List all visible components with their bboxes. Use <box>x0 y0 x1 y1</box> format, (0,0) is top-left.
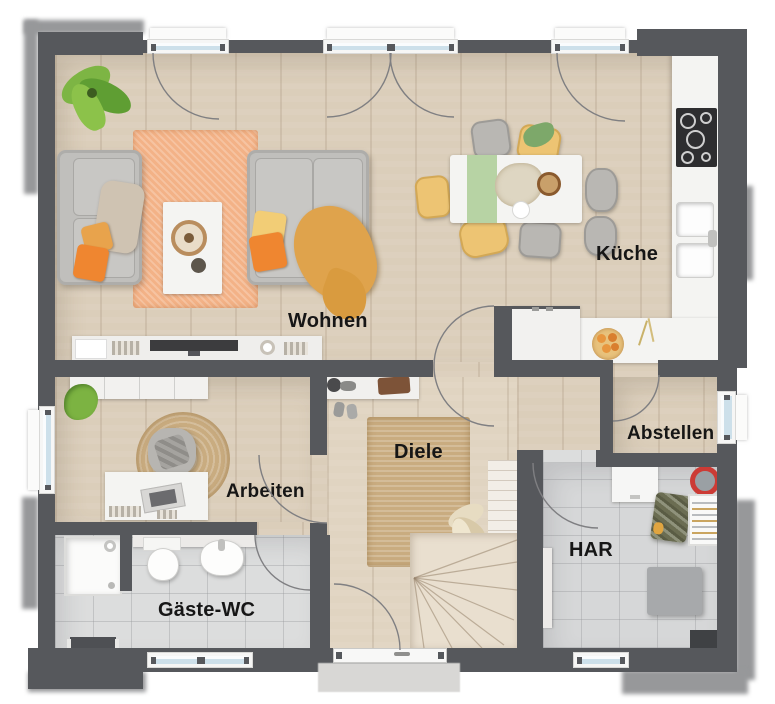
fruit-bowl <box>592 328 624 360</box>
kitchen-cabinet <box>512 306 580 363</box>
room-label-kueche: Küche <box>596 243 658 266</box>
floor-door-gap-living <box>433 362 494 377</box>
window-sill <box>327 28 454 39</box>
floor-plan: Wohnen Küche <box>0 0 775 704</box>
sink-basin <box>676 243 714 278</box>
sideboard-panel <box>75 339 107 359</box>
burner <box>701 152 711 162</box>
wall-wc-top <box>55 522 257 535</box>
laundry-basket <box>650 492 692 544</box>
room-label-arbeiten: Arbeiten <box>226 481 305 503</box>
vase <box>191 258 206 273</box>
window-glass <box>152 43 224 50</box>
plaid-cushion <box>153 433 191 471</box>
small-bowl <box>512 201 530 219</box>
window-mullion <box>387 44 395 51</box>
floor-door-gap-arbeiten <box>310 455 327 523</box>
window-glass <box>556 43 624 50</box>
door-frame-tick <box>438 652 444 659</box>
books <box>157 510 177 519</box>
table-runner <box>467 155 497 223</box>
room-label-wohnen: Wohnen <box>288 310 368 333</box>
wall-wohnen-arbeiten <box>55 360 310 377</box>
office-chair <box>148 428 196 476</box>
window-top-2 <box>323 39 458 54</box>
kitchen-counter-right <box>672 53 718 332</box>
utility-box <box>647 567 702 615</box>
console-decor <box>340 381 356 391</box>
orange-pillow <box>248 231 288 272</box>
window-tick <box>724 435 730 440</box>
window-tick <box>555 44 560 51</box>
door-frame-tick <box>336 652 342 659</box>
stair-winder <box>410 533 517 648</box>
shower-partition-wall <box>120 535 132 591</box>
window-tick <box>151 657 156 664</box>
window-sill <box>28 410 39 490</box>
desk <box>105 472 208 520</box>
exterior-shadow <box>735 500 755 680</box>
dining-chair <box>585 168 618 212</box>
burner <box>680 113 696 129</box>
palm-center <box>87 88 97 98</box>
window-tick <box>449 44 454 51</box>
tv-sideboard <box>72 336 322 360</box>
red-bucket-hose <box>690 466 720 496</box>
entrance-porch <box>318 663 460 692</box>
cabinet-divider <box>174 377 175 399</box>
window-tick <box>45 485 51 490</box>
radiator-bracket <box>67 639 71 648</box>
door-handle <box>394 652 410 656</box>
window-tick <box>327 44 332 51</box>
window-bottom-wc <box>147 652 253 668</box>
cooktop <box>676 108 717 167</box>
books <box>109 506 141 517</box>
window-right-abstellen <box>717 391 736 444</box>
exterior-shadow <box>22 497 38 609</box>
burner <box>686 130 705 149</box>
wall-abstellen-bottom <box>600 453 717 467</box>
wall-stair-har <box>517 450 543 650</box>
window-sill <box>150 28 226 39</box>
window-mullion <box>197 657 205 664</box>
toilet <box>147 548 179 581</box>
tv <box>150 340 238 351</box>
room-label-har: HAR <box>569 539 613 562</box>
burner <box>681 151 694 164</box>
faucet <box>708 230 717 247</box>
orange-pillow <box>72 243 109 282</box>
shoes <box>346 403 358 419</box>
wc-sink <box>200 540 244 576</box>
washer-detail <box>630 495 640 499</box>
hall-console <box>322 374 419 399</box>
floor-door-gap-wc <box>257 522 310 535</box>
window-sill <box>555 28 625 39</box>
wall-wc-right <box>310 535 330 650</box>
console-vase <box>327 378 341 392</box>
window-top-3 <box>551 39 629 54</box>
exterior-shadow <box>622 670 748 694</box>
wall-diele-console <box>327 360 433 377</box>
laundry-item <box>653 522 665 535</box>
window-left-arbeiten <box>39 406 55 494</box>
burner <box>700 112 712 124</box>
flower-sprig <box>648 318 655 342</box>
window-sill <box>736 395 747 440</box>
floor-diele-corridor <box>517 377 600 450</box>
window-tick <box>620 44 625 51</box>
palm-plant <box>53 62 137 126</box>
kitchen-counter-bottom <box>580 318 718 363</box>
tray-dot <box>184 233 194 243</box>
room-label-gaeste-wc: Gäste-WC <box>158 599 255 622</box>
front-door <box>333 648 447 663</box>
window-tick <box>45 410 51 415</box>
books <box>112 341 140 355</box>
flower-sprig <box>638 320 648 345</box>
fruit <box>597 334 606 343</box>
wall-har-top-stub <box>596 450 613 467</box>
wall-right-upper <box>718 29 747 368</box>
floor-door-gap-har <box>543 450 598 463</box>
wall-kitchen-south-east <box>658 360 718 377</box>
dining-chair-yellow <box>414 174 452 219</box>
cabinet-handle <box>532 307 539 311</box>
cabinet-divider <box>139 377 140 399</box>
wall-corner-bottom-left <box>28 648 143 689</box>
sofa-left <box>57 150 142 285</box>
window-glass <box>578 656 624 664</box>
shower-head <box>104 540 116 552</box>
window-top-1 <box>147 39 229 54</box>
floor-mat <box>690 630 718 648</box>
wall-arbeiten-diele <box>310 360 327 455</box>
window-tick <box>577 657 582 664</box>
cabinet-handle <box>546 307 553 311</box>
stair-upper-run <box>488 460 517 533</box>
fruit <box>611 343 619 351</box>
window-tick <box>620 657 625 664</box>
window-tick <box>220 44 225 51</box>
shower-drain <box>108 582 115 589</box>
decor-tray <box>171 220 207 256</box>
floor-door-gap-abstellen <box>613 362 658 377</box>
room-label-diele: Diele <box>394 441 443 464</box>
radiator-bracket <box>115 639 119 648</box>
window-bottom-har <box>573 652 629 668</box>
window-tick <box>244 657 249 664</box>
decor-ring <box>260 340 275 355</box>
shower <box>64 536 122 596</box>
faucet <box>218 539 225 551</box>
coffee-table <box>163 202 222 294</box>
fruit <box>608 333 617 342</box>
wall-kitchen-south <box>494 360 613 377</box>
console-bag <box>377 376 410 395</box>
tv-stand <box>188 351 200 356</box>
wall-left <box>38 32 55 672</box>
window-tick <box>151 44 156 51</box>
laptop-screen <box>149 489 177 507</box>
laptop <box>140 483 186 514</box>
dining-chair <box>518 221 562 260</box>
window-glass <box>43 411 51 489</box>
fruit <box>602 344 611 353</box>
exterior-shadow <box>24 20 38 194</box>
books <box>284 342 308 355</box>
cabinet-divider <box>104 377 105 399</box>
room-label-abstellen: Abstellen <box>627 423 714 445</box>
rack-laundry <box>692 502 717 540</box>
window-glass <box>721 396 732 439</box>
washing-machine <box>612 462 658 502</box>
window-tick <box>724 395 730 400</box>
decor-bowl <box>537 172 561 196</box>
dining-table <box>450 155 582 223</box>
